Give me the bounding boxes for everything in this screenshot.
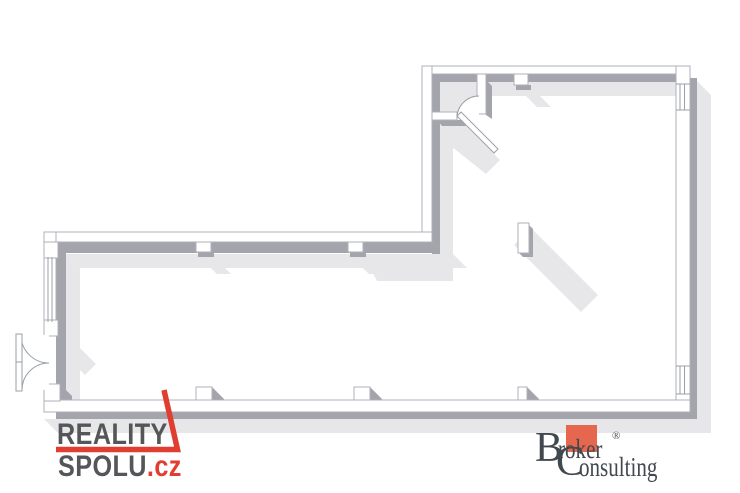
notch3-side [516, 85, 531, 90]
entry-double-door [16, 334, 49, 391]
notch2-side [350, 252, 366, 257]
main-left-wall [422, 66, 432, 232]
left-window-post-bottom [44, 320, 58, 336]
shadows [44, 81, 711, 433]
left-wall-shadow [66, 254, 80, 402]
pillar3-side [527, 387, 539, 400]
reality-spolu-line1: REALITY [57, 420, 168, 450]
vestibule-partition-horizontal [432, 112, 457, 120]
entry-door-leaf-bottom [16, 362, 22, 391]
floor-plan-image: REALITY SPOLU.cz B roker ® C onsulting [0, 0, 740, 493]
pillar2-side [370, 387, 382, 400]
pillar1-side [212, 387, 224, 400]
wing-notch-2 [348, 242, 363, 252]
main-left-wall-side [432, 74, 440, 254]
right-wall [676, 66, 690, 412]
top-wall-side [440, 74, 676, 82]
left-window-band [44, 257, 56, 322]
partition-v-side [486, 80, 492, 119]
wall-sides [56, 74, 697, 419]
consulting-word-rest: onsulting [579, 454, 657, 481]
left-window-post-top [44, 242, 58, 258]
wing-notch-1 [196, 242, 211, 252]
column-side-right [529, 225, 533, 257]
reality-spolu-line2: SPOLU.cz [58, 452, 182, 482]
bottom-pillar-1 [196, 387, 212, 400]
wing-top-wall [44, 232, 432, 242]
bottom-wall [44, 400, 690, 412]
right-wall-side [690, 78, 697, 419]
reality-spolu-tld: .cz [147, 450, 182, 483]
notch1-side [198, 252, 214, 257]
top-notch [514, 74, 528, 85]
reality-spolu-word: SPOLU [58, 450, 147, 483]
wing-top-wall-side [56, 242, 440, 253]
free-column [518, 223, 529, 253]
bottom-pillar-2 [354, 387, 370, 400]
walls [44, 66, 690, 412]
bottom-pillar-3 [518, 387, 527, 400]
entry-door-leaf-top [16, 334, 22, 363]
top-wall [422, 66, 690, 74]
registered-trademark-icon: ® [612, 431, 620, 442]
